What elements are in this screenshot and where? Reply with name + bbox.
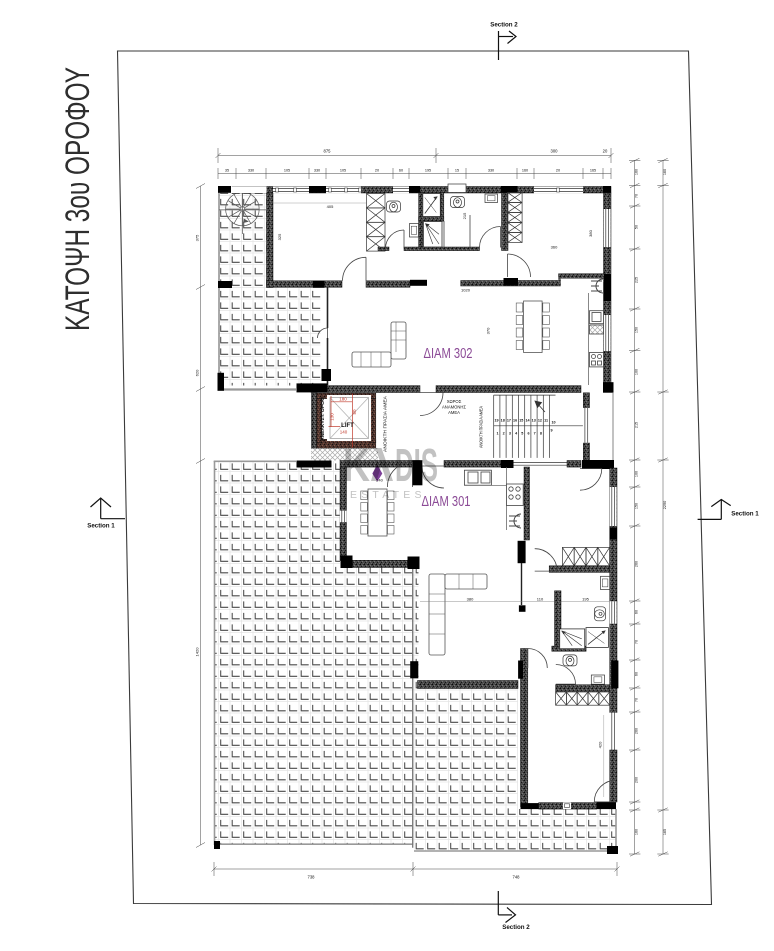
svg-text:8: 8 xyxy=(540,431,542,435)
svg-text:12: 12 xyxy=(538,418,542,422)
svg-text:375: 375 xyxy=(195,234,200,241)
svg-text:60: 60 xyxy=(635,672,639,676)
svg-text:7: 7 xyxy=(534,431,536,435)
svg-text:1420: 1420 xyxy=(195,647,200,657)
svg-text:225: 225 xyxy=(635,277,639,283)
svg-text:60: 60 xyxy=(635,610,639,614)
svg-text:18: 18 xyxy=(501,418,505,422)
svg-text:20: 20 xyxy=(603,149,608,154)
svg-text:195: 195 xyxy=(425,169,431,173)
svg-text:130: 130 xyxy=(330,413,335,421)
svg-text:50: 50 xyxy=(635,225,639,229)
svg-text:15: 15 xyxy=(455,169,459,173)
svg-text:2290: 2290 xyxy=(663,501,667,509)
svg-text:160: 160 xyxy=(635,169,639,175)
svg-text:ΧΩΡΟΣ: ΧΩΡΟΣ xyxy=(447,399,462,404)
svg-text:ΚΑΤΟΨΗ 3ου ΟΡΟΦΟΥ: ΚΑΤΟΨΗ 3ου ΟΡΟΦΟΥ xyxy=(59,67,97,331)
svg-text:10: 10 xyxy=(551,421,555,425)
svg-text:300: 300 xyxy=(551,149,559,154)
svg-text:ΑΝΕΛΚΥΣΤ. ΟΡΟΦ: ΑΝΕΛΚΥΣΤ. ΟΡΟΦ xyxy=(320,397,325,441)
svg-text:370: 370 xyxy=(486,327,491,334)
svg-text:140: 140 xyxy=(340,430,348,435)
svg-text:380: 380 xyxy=(588,229,593,236)
svg-text:330: 330 xyxy=(248,169,254,173)
svg-text:330: 330 xyxy=(488,169,494,173)
svg-text:80: 80 xyxy=(352,409,357,415)
svg-text:3: 3 xyxy=(509,431,511,435)
svg-text:150: 150 xyxy=(635,327,639,333)
svg-text:ΔΙΑΜ 302: ΔΙΑΜ 302 xyxy=(424,346,473,362)
svg-text:105: 105 xyxy=(284,169,290,173)
svg-text:100: 100 xyxy=(635,369,639,375)
svg-text:LIFT: LIFT xyxy=(341,423,354,429)
svg-text:Section 1: Section 1 xyxy=(731,511,759,518)
svg-text:19: 19 xyxy=(494,418,498,422)
svg-text:Section 2: Section 2 xyxy=(502,924,530,931)
svg-text:ESTATES: ESTATES xyxy=(350,489,426,501)
svg-text:420: 420 xyxy=(598,741,603,748)
svg-text:60: 60 xyxy=(399,169,403,173)
svg-text:9: 9 xyxy=(550,429,552,433)
svg-text:5: 5 xyxy=(521,431,523,435)
svg-text:875: 875 xyxy=(324,149,332,154)
svg-text:215: 215 xyxy=(635,422,639,428)
svg-text:ΑΝΟΙΚΤΗ ΠΡΑΣΙΑ ΑΜΕΑ: ΑΝΟΙΚΤΗ ΠΡΑΣΙΑ ΑΜΕΑ xyxy=(383,396,388,452)
svg-text:ΑΝΟΙΚΤΗ ΠΡΑΣΙΑ ΑΜΕΑ: ΑΝΟΙΚΤΗ ΠΡΑΣΙΑ ΑΜΕΑ xyxy=(479,406,484,448)
svg-text:17: 17 xyxy=(507,418,511,422)
svg-text:DIS: DIS xyxy=(395,439,438,491)
svg-text:ΑΜΕΑ: ΑΜΕΑ xyxy=(448,410,460,415)
svg-text:6: 6 xyxy=(527,431,529,435)
svg-text:2: 2 xyxy=(503,431,505,435)
svg-text:150: 150 xyxy=(635,503,639,509)
svg-text:620: 620 xyxy=(195,369,200,376)
svg-text:405: 405 xyxy=(327,204,334,209)
svg-text:1: 1 xyxy=(496,431,498,435)
svg-text:35: 35 xyxy=(225,169,229,173)
svg-text:200: 200 xyxy=(635,777,639,783)
svg-text:215: 215 xyxy=(462,212,467,219)
svg-text:738: 738 xyxy=(308,875,316,880)
svg-text:20: 20 xyxy=(556,169,560,173)
svg-text:165: 165 xyxy=(663,829,667,835)
svg-text:325: 325 xyxy=(277,233,282,240)
svg-text:165: 165 xyxy=(590,169,596,173)
svg-text:260: 260 xyxy=(635,728,639,734)
svg-text:Section 1: Section 1 xyxy=(87,523,115,530)
svg-text:380: 380 xyxy=(467,597,474,602)
svg-text:160: 160 xyxy=(663,169,667,175)
svg-text:70: 70 xyxy=(635,698,639,702)
svg-text:K: K xyxy=(343,439,370,491)
svg-text:1020: 1020 xyxy=(461,288,471,293)
svg-text:360: 360 xyxy=(551,245,558,250)
svg-text:ΔΙΑΜ 301: ΔΙΑΜ 301 xyxy=(422,494,471,510)
svg-text:13: 13 xyxy=(532,418,536,422)
svg-text:70: 70 xyxy=(635,194,639,198)
svg-text:105: 105 xyxy=(340,169,346,173)
svg-text:195: 195 xyxy=(582,597,589,602)
svg-text:70: 70 xyxy=(635,640,639,644)
svg-text:160: 160 xyxy=(522,169,528,173)
svg-text:260: 260 xyxy=(635,561,639,567)
svg-text:20: 20 xyxy=(375,169,379,173)
svg-text:110: 110 xyxy=(537,597,544,602)
svg-text:11: 11 xyxy=(544,418,548,422)
svg-text:ΑΝΑΜΟΝΗΣ: ΑΝΑΜΟΝΗΣ xyxy=(442,405,466,410)
svg-text:Section 2: Section 2 xyxy=(490,22,518,29)
svg-text:100: 100 xyxy=(635,471,639,477)
svg-text:160: 160 xyxy=(635,829,639,835)
svg-text:180: 180 xyxy=(339,397,347,402)
svg-text:15: 15 xyxy=(519,418,523,422)
svg-text:748: 748 xyxy=(513,875,521,880)
svg-text:330: 330 xyxy=(314,169,320,173)
svg-text:16: 16 xyxy=(513,418,517,422)
